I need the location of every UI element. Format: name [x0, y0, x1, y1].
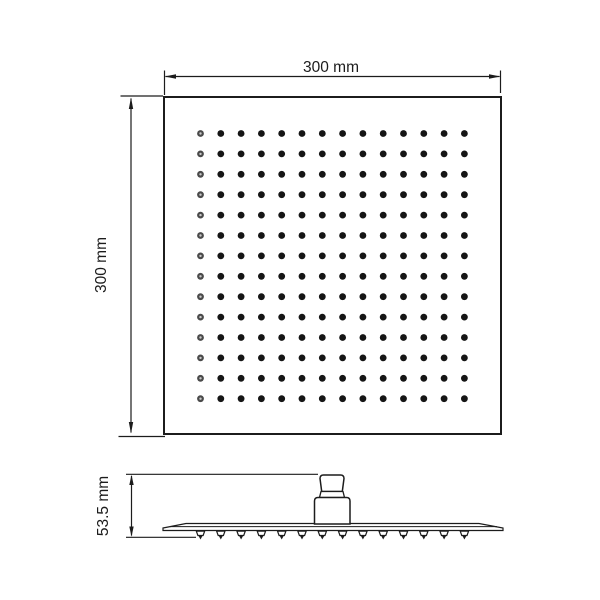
nozzle-dot [441, 395, 448, 402]
nozzle-dot [299, 293, 306, 300]
nozzle-dot [299, 232, 306, 239]
nozzle-dot-center [199, 357, 201, 359]
nozzle-dot [278, 130, 285, 137]
nozzle-dot [461, 355, 468, 362]
nozzle-dot [258, 334, 265, 341]
side-nozzle [278, 531, 286, 539]
nozzle-dot [319, 171, 326, 178]
nozzle-tip [462, 536, 466, 540]
nozzle-dot [441, 273, 448, 280]
nozzle-dot [319, 191, 326, 198]
nozzle-tip [320, 536, 324, 540]
nozzle-cup [440, 531, 448, 535]
nozzle-dot [299, 191, 306, 198]
nozzle-dot [217, 212, 224, 219]
nozzle-dot [258, 355, 265, 362]
nozzle-tip [300, 536, 304, 540]
nozzle-tip [361, 536, 365, 540]
nozzle-dot [278, 273, 285, 280]
nozzle-dot [441, 232, 448, 239]
side-nozzle [420, 531, 428, 539]
nozzle-dot [400, 191, 407, 198]
nozzle-dot [360, 212, 367, 219]
nozzle-dot [360, 334, 367, 341]
nozzle-dot [299, 375, 306, 382]
side-nozzle [298, 531, 306, 539]
nozzle-dot [319, 273, 326, 280]
nozzle-dot [441, 253, 448, 260]
nozzle-cup [379, 531, 387, 535]
nozzle-dot [319, 334, 326, 341]
nozzle-dot [217, 130, 224, 137]
nozzle-dot [420, 171, 427, 178]
nozzle-dot [360, 191, 367, 198]
nozzle-dot [238, 334, 245, 341]
nozzle-dot [380, 395, 387, 402]
nozzle-cup [257, 531, 265, 535]
nozzle-dot [420, 293, 427, 300]
nozzle-dot [339, 191, 346, 198]
nozzle-dot [461, 273, 468, 280]
nozzle-dot [217, 334, 224, 341]
nozzle-tip [381, 536, 385, 540]
nozzle-dot [400, 253, 407, 260]
nozzle-dot-center [199, 316, 201, 318]
nozzle-dot [278, 151, 285, 158]
nozzle-dot [420, 395, 427, 402]
nozzle-dot [339, 334, 346, 341]
nozzle-dot [360, 375, 367, 382]
nozzle-dot-center [199, 336, 201, 338]
nozzle-dot [258, 191, 265, 198]
nozzle-dot [360, 293, 367, 300]
nozzle-dot [400, 355, 407, 362]
nozzle-dot [278, 212, 285, 219]
nozzle-dot [238, 191, 245, 198]
nozzle-tip [198, 536, 202, 540]
nozzle-dot [278, 191, 285, 198]
nozzle-dot [278, 293, 285, 300]
nozzle-dot [420, 191, 427, 198]
nozzle-dot [420, 130, 427, 137]
nozzle-dot [441, 375, 448, 382]
nozzle-dot [217, 171, 224, 178]
nozzle-dot [441, 212, 448, 219]
nozzle-dot [400, 395, 407, 402]
nozzle-dot [238, 314, 245, 321]
nozzle-dot [319, 375, 326, 382]
side-nozzle [196, 531, 204, 539]
nozzle-dot [339, 212, 346, 219]
nozzle-dot [258, 232, 265, 239]
side-nozzle [338, 531, 346, 539]
nozzle-dot [360, 355, 367, 362]
top-view [164, 97, 501, 434]
nozzle-tip [442, 536, 446, 540]
arrowhead-down [129, 422, 133, 434]
side-height-label: 53.5 mm [95, 476, 112, 536]
nozzle-dot [258, 395, 265, 402]
nozzle-dot [380, 253, 387, 260]
nozzle-dot-center [199, 398, 201, 400]
nozzle-dot [441, 151, 448, 158]
nozzle-dot [420, 151, 427, 158]
side-nozzle [237, 531, 245, 539]
nozzle-dot [420, 314, 427, 321]
nozzle-dot [420, 273, 427, 280]
side-nozzle [379, 531, 387, 539]
nozzle-dot [461, 232, 468, 239]
nozzle-dot [238, 151, 245, 158]
nozzle-dot [217, 355, 224, 362]
nozzle-dot [339, 232, 346, 239]
nozzle-cup [359, 531, 367, 535]
nozzle-dot [299, 171, 306, 178]
nozzle-dot [278, 375, 285, 382]
nozzle-dot [258, 375, 265, 382]
top-width-dimension: 300 mm [165, 59, 501, 95]
nozzle-dot [217, 375, 224, 382]
nozzle-dot [380, 212, 387, 219]
nozzle-dot [238, 253, 245, 260]
nozzle-dot [461, 253, 468, 260]
nozzle-dot [299, 212, 306, 219]
shower-face-outline [164, 97, 501, 434]
nozzle-dot [380, 334, 387, 341]
nozzle-dot [278, 232, 285, 239]
nozzle-cup [399, 531, 407, 535]
nozzle-dot [441, 191, 448, 198]
arrowhead-right [489, 74, 501, 79]
nozzle-dot [217, 293, 224, 300]
drawing-svg: 300 mm 300 mm 53.5 mm [0, 0, 600, 600]
nozzle-dot [400, 314, 407, 321]
nozzle-dot [217, 253, 224, 260]
arrowhead-up [129, 98, 133, 110]
nozzle-dot [278, 314, 285, 321]
side-nozzles [196, 531, 468, 539]
nozzle-tip [239, 536, 243, 540]
nozzle-dot-center [199, 377, 201, 379]
nozzle-dot [258, 151, 265, 158]
nozzle-dot [299, 314, 306, 321]
nozzle-dot [299, 253, 306, 260]
nozzle-dot [400, 130, 407, 137]
nozzle-dot [360, 171, 367, 178]
nozzle-tip [401, 536, 405, 540]
nozzle-dot [299, 334, 306, 341]
connector-base [315, 498, 351, 525]
nozzle-dot [441, 171, 448, 178]
nozzle-dot [461, 130, 468, 137]
nozzle-tip [219, 536, 223, 540]
arrowhead-up [129, 475, 133, 485]
nozzle-dot [339, 253, 346, 260]
nozzle-cup [217, 531, 225, 535]
nozzle-dot [278, 334, 285, 341]
nozzle-dot [360, 395, 367, 402]
nozzle-tip [340, 536, 344, 540]
nozzle-dot [380, 314, 387, 321]
arrowhead-down [129, 527, 133, 537]
nozzle-dot-center [199, 255, 201, 257]
nozzle-dot [400, 334, 407, 341]
side-nozzle [318, 531, 326, 539]
nozzle-dot-center [199, 296, 201, 298]
nozzle-dot [299, 151, 306, 158]
nozzle-dot [400, 293, 407, 300]
nozzle-dot [299, 395, 306, 402]
nozzle-dot [319, 232, 326, 239]
side-nozzle [460, 531, 468, 539]
nozzle-dot [319, 395, 326, 402]
nozzle-dot [360, 130, 367, 137]
nozzle-cup [237, 531, 245, 535]
nozzle-dot [319, 151, 326, 158]
nozzle-dot [238, 293, 245, 300]
arrowhead-left [165, 74, 177, 79]
nozzle-dot [380, 273, 387, 280]
side-nozzle [257, 531, 265, 539]
nozzle-dot [339, 314, 346, 321]
nozzle-dot [400, 151, 407, 158]
nozzle-dot [339, 293, 346, 300]
nozzle-dot [258, 273, 265, 280]
nozzle-dot-center [199, 173, 201, 175]
nozzle-dot [319, 253, 326, 260]
nozzle-dot [217, 273, 224, 280]
nozzle-dot [441, 293, 448, 300]
nozzle-dot [420, 334, 427, 341]
nozzle-dot [319, 314, 326, 321]
nozzle-cup [420, 531, 428, 535]
nozzle-dot [238, 232, 245, 239]
nozzle-dot-center [199, 275, 201, 277]
nozzle-dot [299, 273, 306, 280]
nozzle-dot [339, 171, 346, 178]
nozzle-dot [299, 130, 306, 137]
nozzle-dot [217, 395, 224, 402]
nozzle-dot [258, 130, 265, 137]
nozzle-dot [217, 232, 224, 239]
nozzle-cup [278, 531, 286, 535]
nozzle-dot [258, 314, 265, 321]
side-nozzle [359, 531, 367, 539]
nozzle-dot [238, 375, 245, 382]
nozzle-dot [339, 151, 346, 158]
left-height-label: 300 mm [93, 237, 110, 293]
nozzle-dot [339, 355, 346, 362]
nozzle-dot [400, 273, 407, 280]
nozzle-dot [461, 191, 468, 198]
nozzle-dot [278, 395, 285, 402]
nozzle-dot [238, 212, 245, 219]
nozzle-tip [259, 536, 263, 540]
nozzle-dot [461, 334, 468, 341]
nozzle-cup [338, 531, 346, 535]
nozzle-dot [319, 130, 326, 137]
nozzle-dot [441, 314, 448, 321]
nozzle-dot [238, 395, 245, 402]
nozzle-dot [380, 171, 387, 178]
nozzle-dot [319, 355, 326, 362]
side-nozzle [440, 531, 448, 539]
nozzle-dot [238, 171, 245, 178]
nozzle-dot [400, 171, 407, 178]
connector-upper-nut [320, 475, 344, 492]
nozzle-dot [420, 212, 427, 219]
nozzle-dot [461, 171, 468, 178]
nozzle-dot [400, 232, 407, 239]
nozzle-dot [380, 151, 387, 158]
nozzle-dot [299, 355, 306, 362]
nozzle-dot [339, 375, 346, 382]
nozzle-dot [319, 212, 326, 219]
nozzle-dot [278, 355, 285, 362]
nozzle-dot [360, 232, 367, 239]
nozzle-tip [422, 536, 426, 540]
nozzle-dot [380, 293, 387, 300]
nozzle-dot [461, 151, 468, 158]
nozzle-dot [258, 293, 265, 300]
nozzle-dot-center [199, 214, 201, 216]
nozzle-dot [400, 375, 407, 382]
nozzle-cup [196, 531, 204, 535]
nozzle-dot [441, 355, 448, 362]
nozzle-dot [238, 273, 245, 280]
nozzle-dot [278, 253, 285, 260]
nozzle-dot [258, 253, 265, 260]
nozzle-dot [461, 395, 468, 402]
nozzle-dot [360, 314, 367, 321]
nozzle-dot [380, 355, 387, 362]
nozzle-cup [298, 531, 306, 535]
nozzle-tip [280, 536, 284, 540]
nozzle-dot [217, 314, 224, 321]
nozzle-dot [217, 151, 224, 158]
nozzle-dot [461, 212, 468, 219]
nozzle-dot [319, 293, 326, 300]
nozzle-dot [461, 375, 468, 382]
nozzle-dot [461, 314, 468, 321]
nozzle-dot [258, 171, 265, 178]
nozzle-cup [318, 531, 326, 535]
nozzle-dot [360, 253, 367, 260]
side-nozzle [217, 531, 225, 539]
nozzle-dot [380, 232, 387, 239]
nozzle-dot [217, 191, 224, 198]
nozzle-dot [278, 171, 285, 178]
nozzle-dot [420, 355, 427, 362]
nozzle-dot [420, 253, 427, 260]
nozzle-dot [360, 151, 367, 158]
nozzle-dot [441, 130, 448, 137]
nozzle-dot-center [199, 234, 201, 236]
side-nozzle [399, 531, 407, 539]
side-view [163, 475, 503, 540]
nozzle-dot [441, 334, 448, 341]
nozzle-dot [380, 191, 387, 198]
nozzle-dot [420, 375, 427, 382]
nozzle-dot [339, 395, 346, 402]
nozzle-dot [339, 273, 346, 280]
nozzle-dot [339, 130, 346, 137]
nozzle-cup [460, 531, 468, 535]
nozzle-dot [420, 232, 427, 239]
nozzle-dot [380, 375, 387, 382]
nozzle-dot-center [199, 153, 201, 155]
left-height-dimension: 300 mm [93, 96, 165, 437]
nozzle-dot [238, 355, 245, 362]
top-width-label: 300 mm [303, 59, 359, 76]
nozzle-dot [461, 293, 468, 300]
technical-drawing-shower-head: 300 mm 300 mm 53.5 mm [0, 0, 600, 600]
nozzle-dot-center [199, 194, 201, 196]
nozzle-dot [238, 130, 245, 137]
nozzle-dot [360, 273, 367, 280]
nozzle-dot [258, 212, 265, 219]
nozzle-dot-center [199, 132, 201, 134]
nozzle-dot [380, 130, 387, 137]
connector-collar [320, 492, 345, 498]
nozzle-dot [400, 212, 407, 219]
